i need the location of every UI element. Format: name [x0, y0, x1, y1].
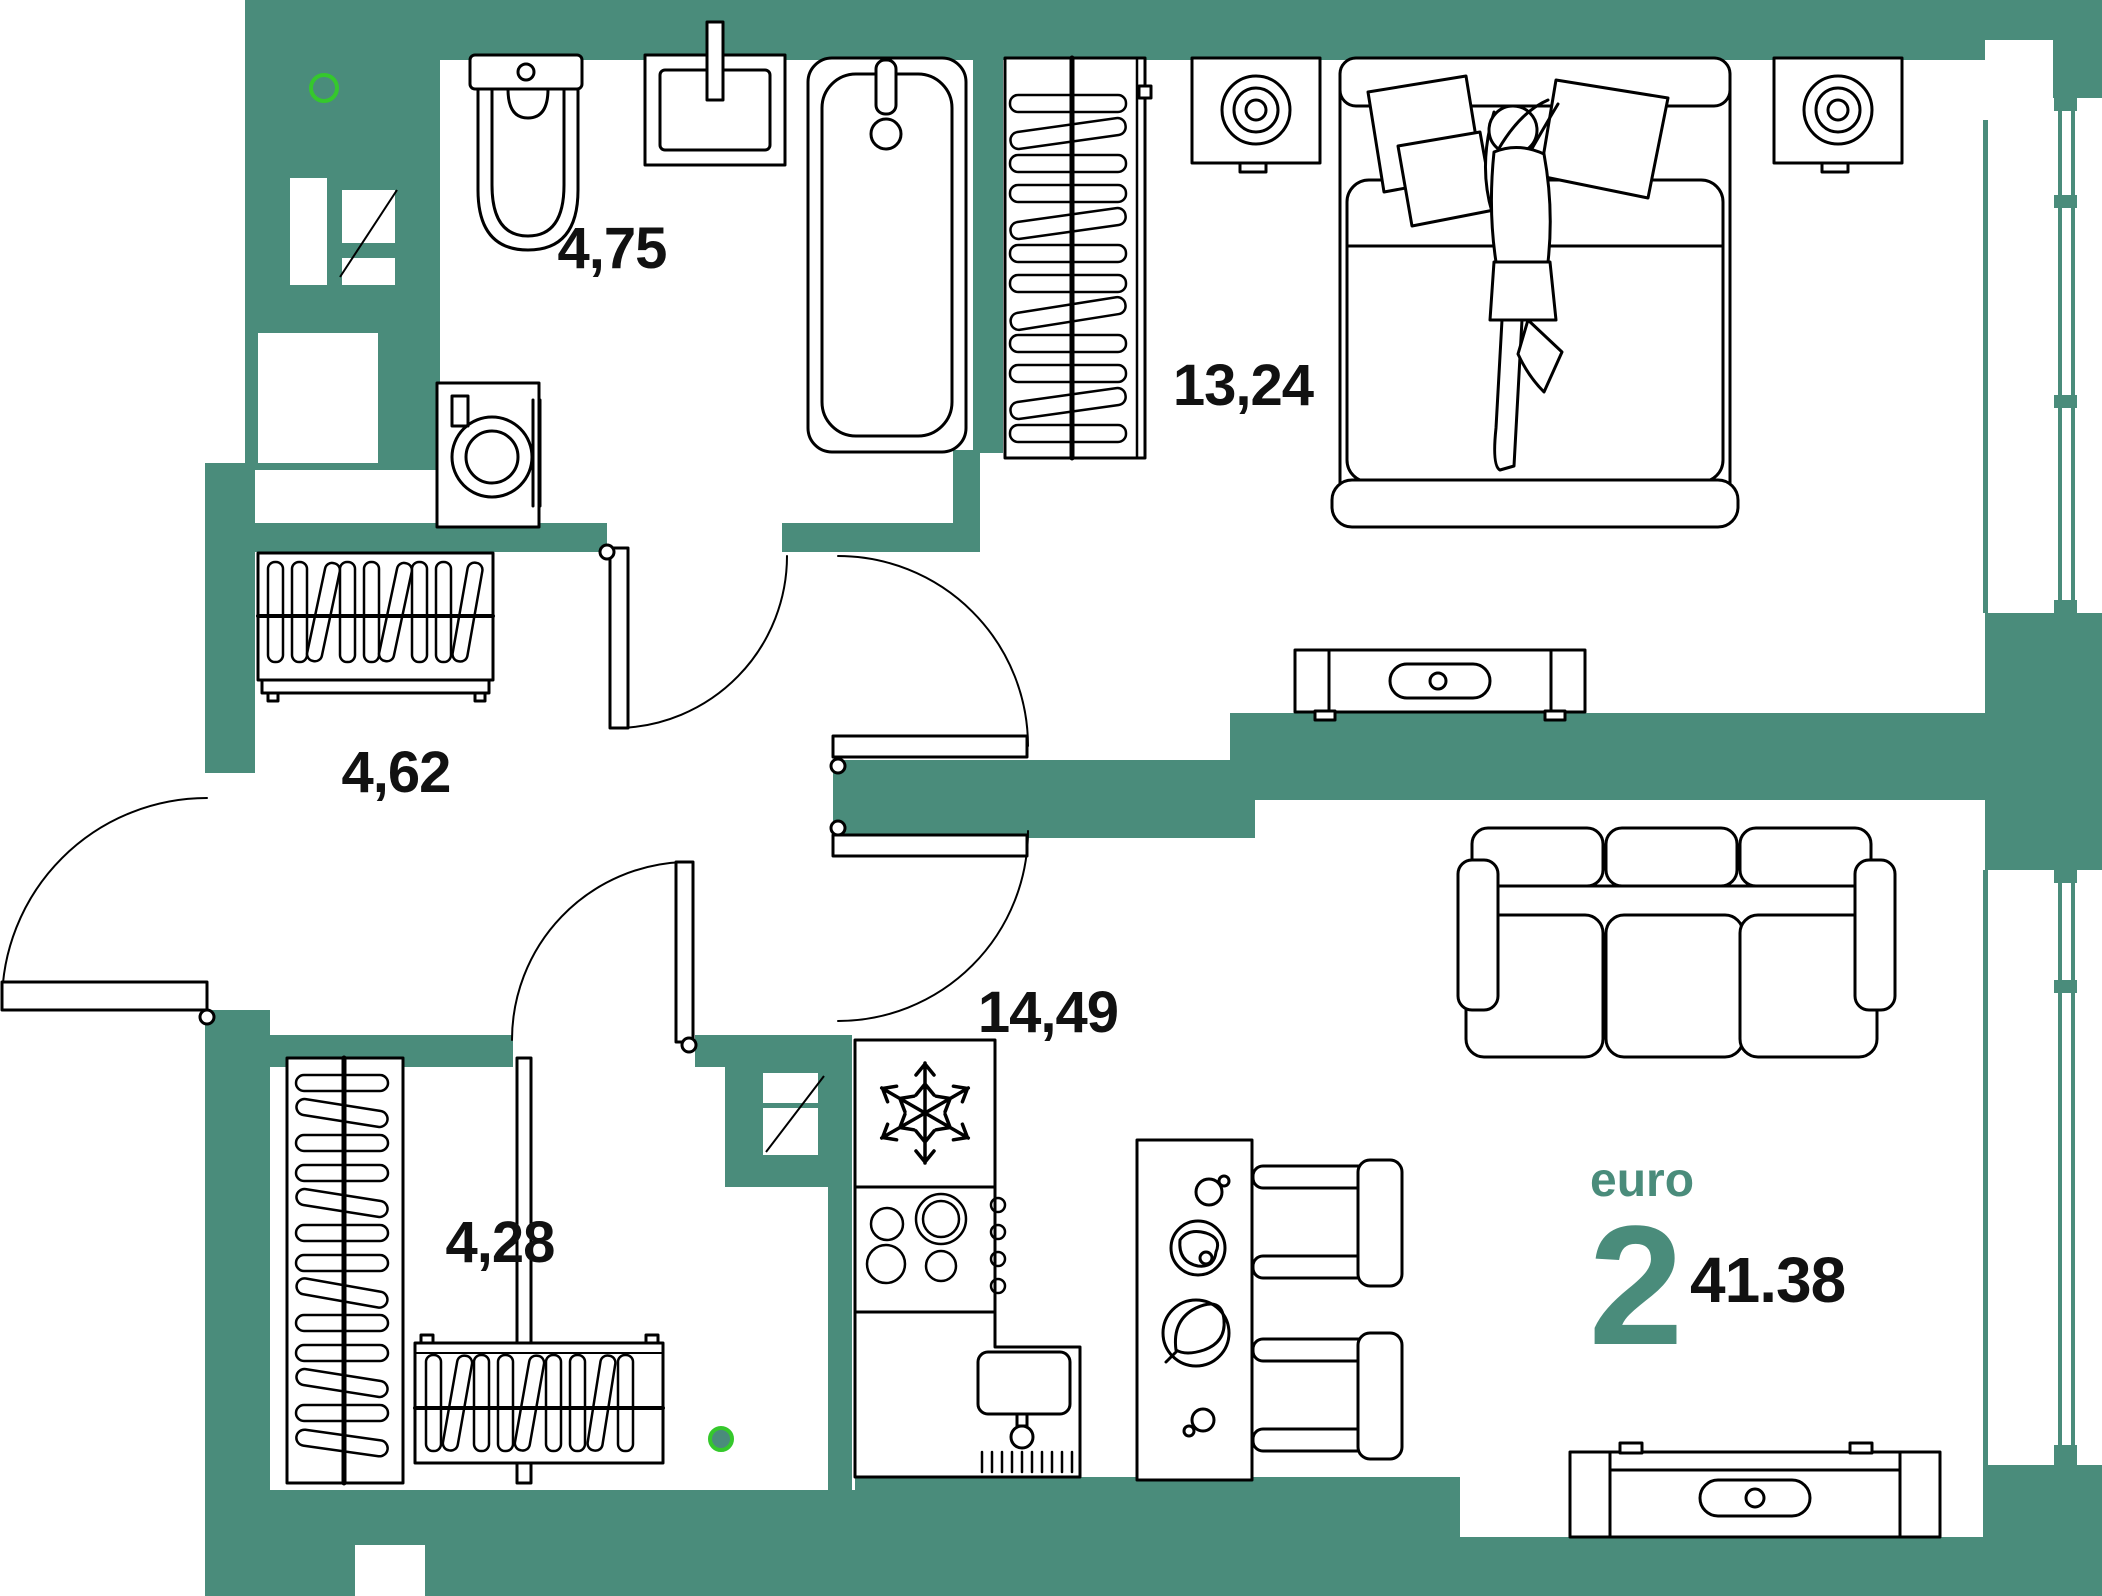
wardrobe-rail-vertical	[287, 1058, 403, 1483]
pillow	[1540, 80, 1668, 198]
hall-wardrobe	[258, 553, 493, 701]
bathtub	[808, 58, 966, 452]
room-area-bedroom: 13,24	[1173, 353, 1314, 418]
wardrobe-rail-horizontal	[415, 1335, 663, 1463]
window-living	[2054, 870, 2077, 1465]
nightstand-right	[1774, 58, 1902, 172]
chair	[1253, 1160, 1402, 1286]
floor-plan: 4,75 13,24 4,62 4,28 14,49 41.38 euro 2	[0, 0, 2102, 1596]
green-dot-icon	[710, 1428, 732, 1450]
bathroom-door	[600, 545, 787, 728]
dining-table	[1137, 1140, 1252, 1480]
double-bed	[1332, 58, 1738, 527]
wardrobe-door	[512, 862, 696, 1052]
floor-plan-canvas: 4,75 13,24 4,62 4,28 14,49 41.38 euro 2	[0, 0, 2102, 1596]
room-area-wardrobe: 4,28	[446, 1210, 555, 1275]
window-bedroom	[2054, 98, 2077, 613]
sofa	[1458, 828, 1895, 1057]
bedroom-console	[1295, 650, 1585, 720]
rooms-count-badge: 2	[1589, 1191, 1680, 1381]
total-area: 41.38	[1690, 1244, 1845, 1316]
kitchen-sink	[978, 1352, 1070, 1414]
nightstand-left	[1192, 58, 1320, 172]
room-area-kitchen: 14,49	[978, 980, 1118, 1045]
washing-machine	[437, 383, 540, 527]
entry-door	[2, 798, 214, 1024]
stove	[855, 1187, 995, 1312]
bedroom-closet	[1005, 58, 1151, 458]
room-area-bathroom: 4,75	[558, 216, 667, 281]
room-area-hallway: 4,62	[342, 740, 451, 805]
kitchen-unit	[855, 1040, 1080, 1477]
green-dot-icon	[311, 75, 337, 101]
living-console	[1570, 1443, 1940, 1537]
pillow	[1398, 132, 1494, 226]
chair	[1253, 1333, 1402, 1459]
